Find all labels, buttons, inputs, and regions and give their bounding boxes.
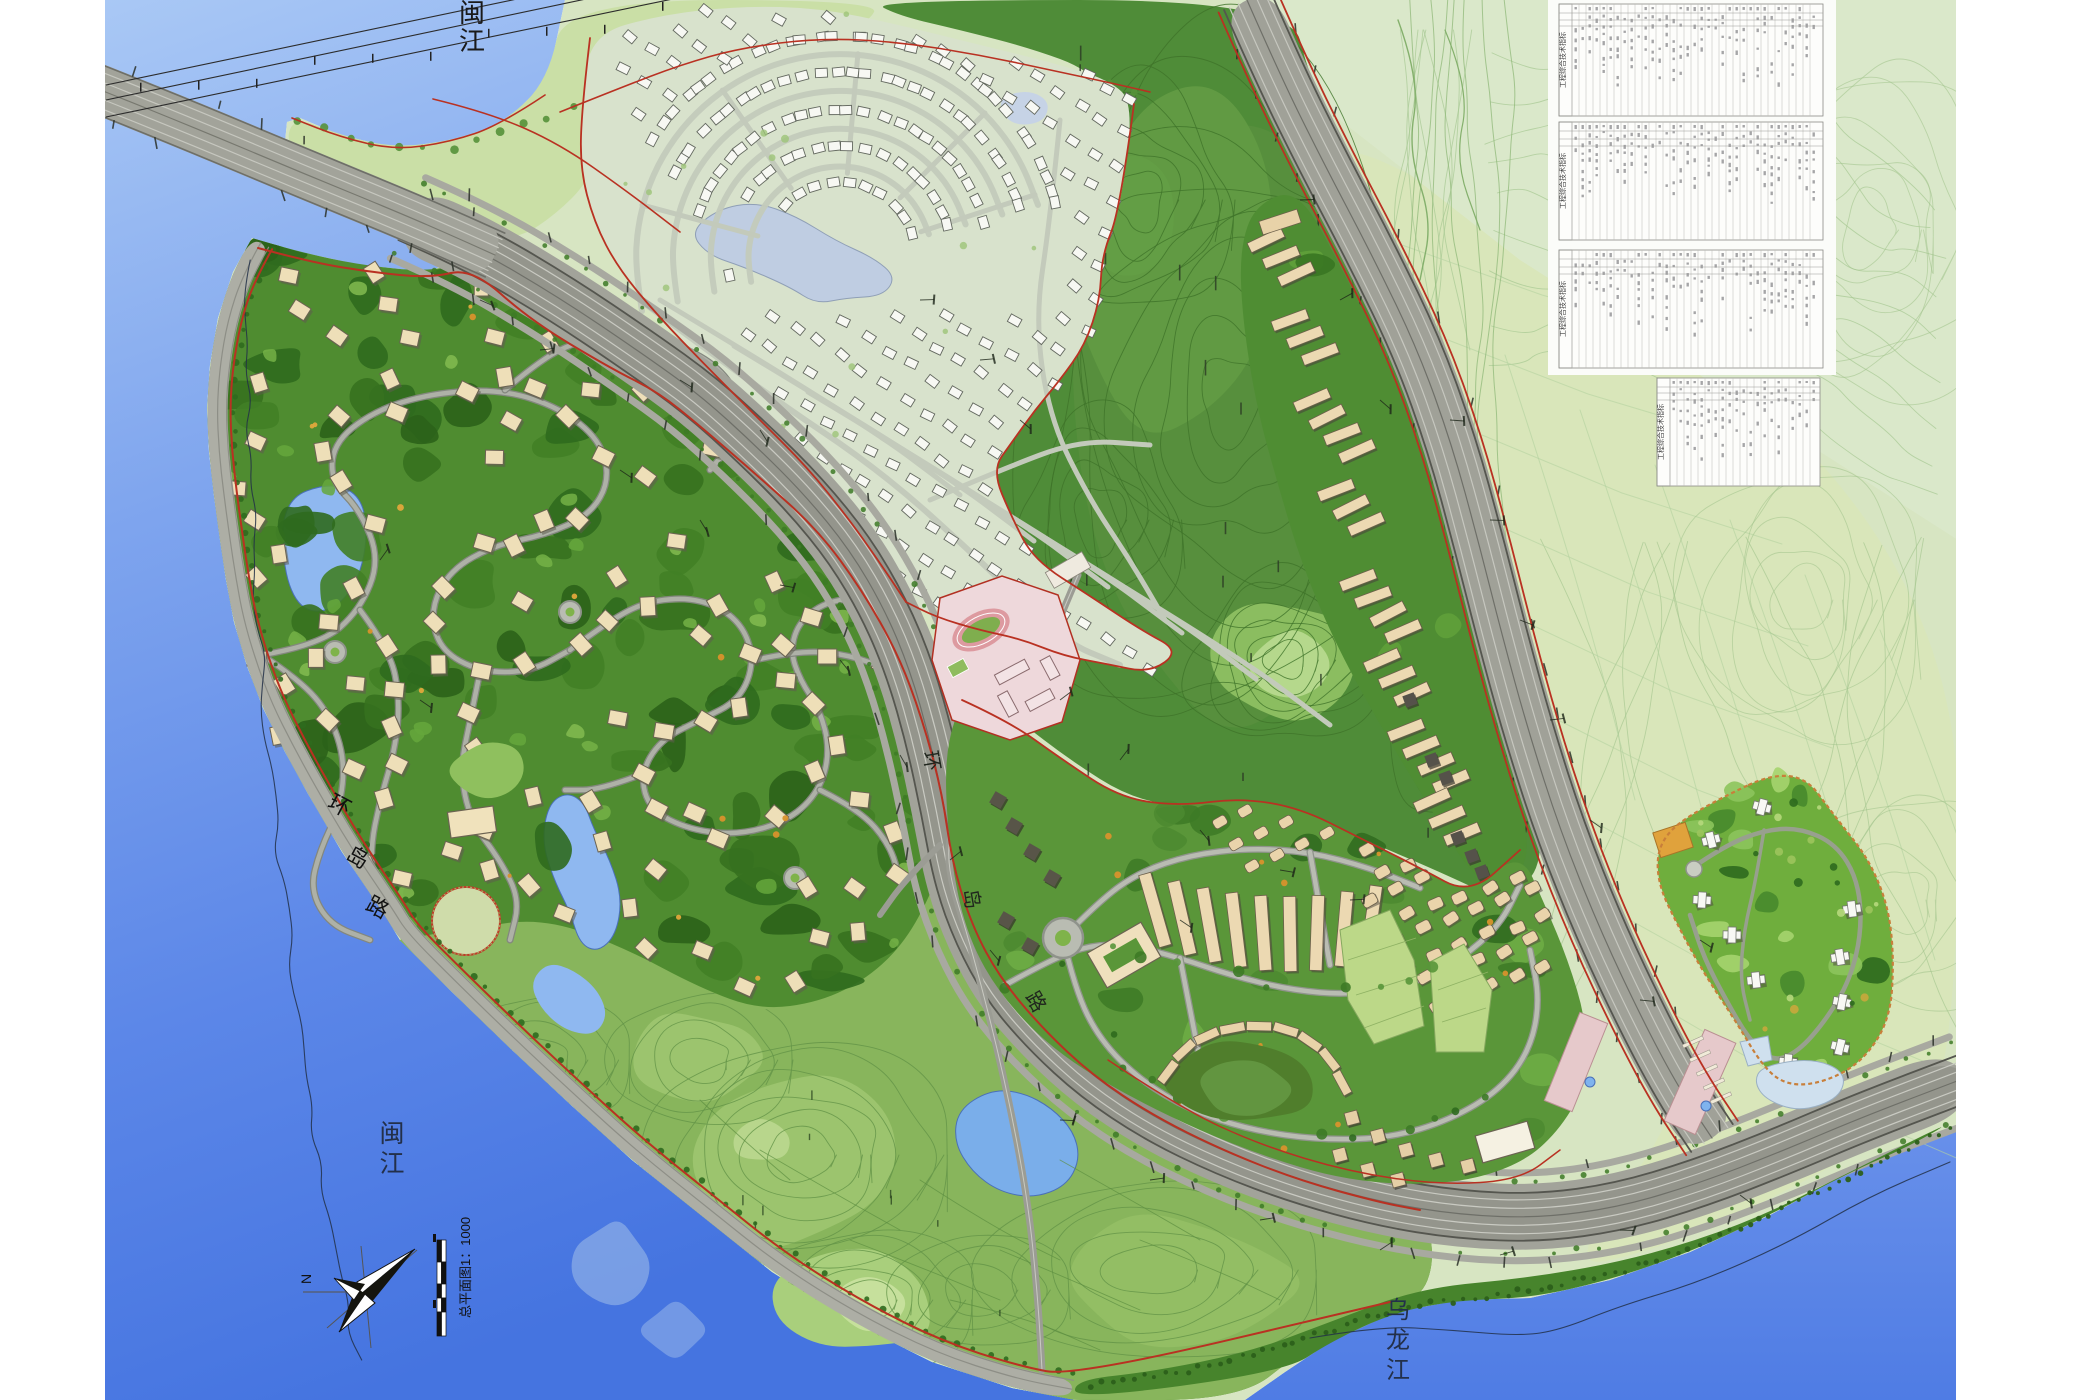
svg-text:岛: 岛	[958, 887, 984, 911]
svg-text:工程综合技术指标: 工程综合技术指标	[1558, 32, 1567, 88]
svg-text:闽: 闽	[459, 0, 485, 28]
svg-text:乌: 乌	[1386, 1297, 1410, 1324]
svg-text:江: 江	[379, 1150, 404, 1178]
svg-text:江: 江	[1386, 1357, 1410, 1384]
svg-text:江: 江	[459, 26, 485, 56]
svg-text:闽: 闽	[379, 1120, 404, 1148]
svg-text:工程综合技术指标: 工程综合技术指标	[1558, 153, 1567, 209]
svg-text:N: N	[298, 1274, 314, 1284]
svg-text:环: 环	[918, 749, 943, 773]
svg-text:总平面图1：1000: 总平面图1：1000	[458, 1217, 473, 1318]
svg-text:龙: 龙	[1386, 1327, 1410, 1354]
svg-text:工程综合技术指标: 工程综合技术指标	[1656, 404, 1665, 460]
svg-text:工程综合技术指标: 工程综合技术指标	[1558, 281, 1567, 337]
